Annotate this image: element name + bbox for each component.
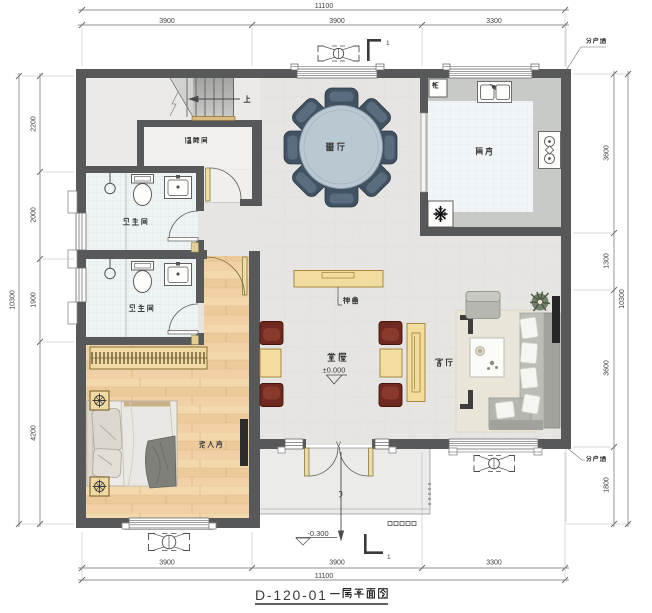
svg-text:3900: 3900 <box>329 18 345 25</box>
svg-text:1800: 1800 <box>604 477 611 493</box>
svg-text:11100: 11100 <box>315 3 334 10</box>
svg-text:3300: 3300 <box>486 560 502 567</box>
svg-text:3600: 3600 <box>604 360 611 376</box>
svg-text:-0.300: -0.300 <box>307 529 328 538</box>
svg-text:2200: 2200 <box>31 116 38 132</box>
svg-text:10300: 10300 <box>10 290 17 310</box>
svg-text:1900: 1900 <box>31 292 38 308</box>
svg-text:4200: 4200 <box>31 425 38 441</box>
svg-text:±0.000: ±0.000 <box>323 366 346 375</box>
svg-text:3900: 3900 <box>159 18 175 25</box>
svg-text:1: 1 <box>386 40 390 47</box>
svg-text:3300: 3300 <box>486 18 502 25</box>
svg-text:3600: 3600 <box>604 145 611 161</box>
svg-text:10300: 10300 <box>619 289 626 309</box>
svg-text:3900: 3900 <box>329 560 345 567</box>
svg-text:11100: 11100 <box>315 573 334 580</box>
svg-text:1300: 1300 <box>604 253 611 269</box>
svg-text:1: 1 <box>387 554 391 561</box>
svg-text:3900: 3900 <box>159 560 175 567</box>
svg-text:2000: 2000 <box>31 207 38 223</box>
svg-text:D-120-01: D-120-01 <box>255 587 328 603</box>
